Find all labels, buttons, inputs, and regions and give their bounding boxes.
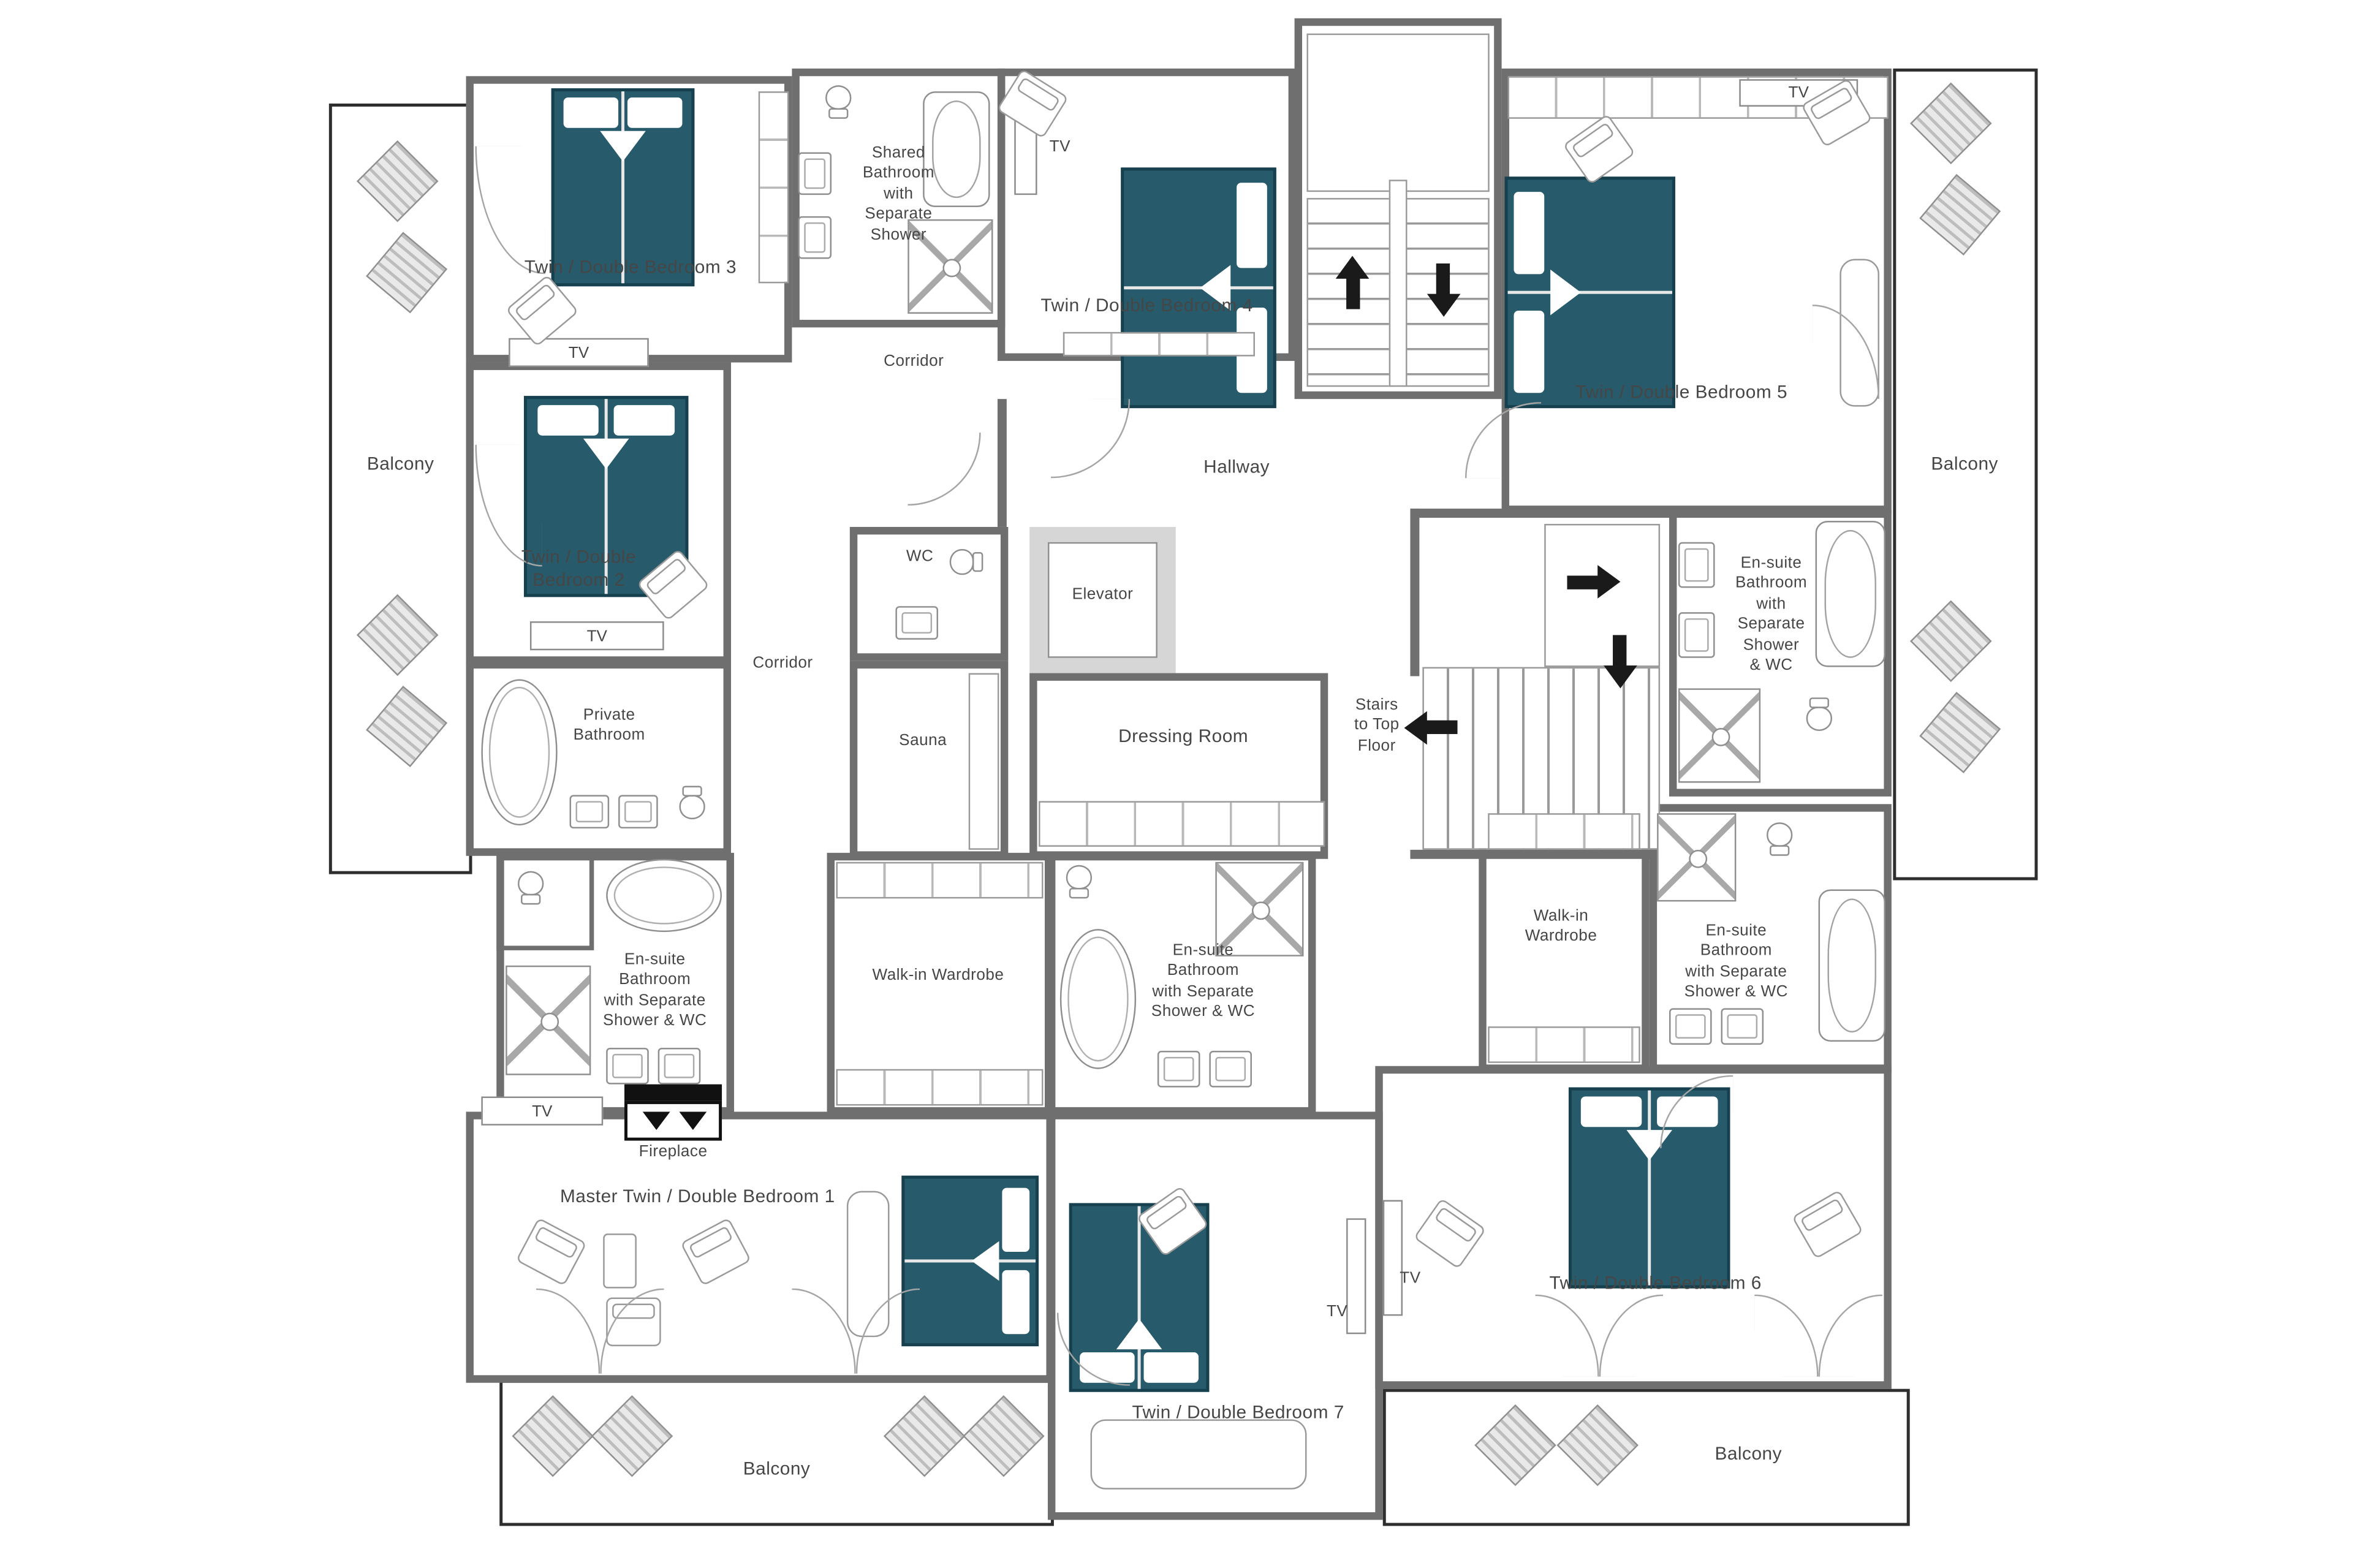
label-stairs: Stairs to Top Floor [1354,695,1400,757]
hall-wall-left [998,399,1007,527]
label-master-bedroom1: Master Twin / Double Bedroom 1 [484,1185,911,1208]
bathtub-icon [1060,929,1136,1069]
sink-icon [658,1048,701,1085]
shower-icon [1657,813,1736,901]
sink-icon [618,795,658,828]
sink-icon [1678,612,1715,658]
tv-label: TV [587,627,607,645]
label-balcony-bottom-right: Balcony [1715,1442,1782,1466]
label-dressing-room: Dressing Room [1061,725,1305,749]
label-elevator: Elevator [1072,585,1134,605]
balcony-bottom-left [499,1380,1054,1526]
toilet-icon [1767,822,1792,856]
dressing-room-cabinet [1039,801,1325,847]
label-ensuite-bedroom5: En-suite Bathroom with Separate Shower &… [1735,554,1807,676]
down-arrow-icon [1602,627,1639,688]
toilet-icon [1066,865,1092,899]
label-bedroom2: Twin / Double Bedroom 2 [521,546,636,593]
chaise-icon [1091,1419,1307,1489]
toilet-icon [1806,697,1832,731]
bathtub-icon [606,859,722,932]
toilet-icon [950,549,983,575]
fireplace-icon [624,1085,722,1101]
sink-icon [895,606,938,640]
label-shared-bathroom: Shared Bathroom with Separate Shower [863,144,934,246]
floorplan-canvas: TV TV TV TV TV TV TV [0,0,2353,1568]
tv-label: TV [1327,1303,1347,1323]
down-arrow-icon [1425,256,1462,317]
toilet-icon [679,786,705,819]
wardrobe-cabinet [1488,813,1640,850]
stairs-wall-bottom [1410,850,1669,859]
floorplan-page: TV TV TV TV TV TV TV [0,0,2353,1568]
dresser [1063,332,1255,357]
label-balcony-right: Balcony [1931,453,1998,476]
stairs-wall-top [1410,509,1669,518]
fireplace-icon [624,1101,722,1141]
tv-label: TV [569,343,589,362]
left-arrow-icon [1404,710,1465,746]
bed-bedroom4 [1121,167,1276,408]
label-private-bathroom: Private Bathroom [574,706,645,747]
sink-icon [1669,1008,1712,1045]
tv-bedroom6 [1383,1200,1403,1316]
label-bedroom4: Twin / Double Bedroom 4 [987,294,1307,317]
wardrobe-cabinet [836,1069,1043,1106]
tv-label: TV [1400,1269,1420,1289]
side-table [603,1233,637,1288]
label-sauna: Sauna [899,732,947,752]
bathtub-icon [1819,889,1885,1042]
sauna-bench [969,673,999,850]
label-bedroom3: Twin / Double Bedroom 3 [463,256,798,279]
label-wc: WC [906,547,934,567]
tv-bedroom3: TV [509,338,649,367]
stairs-wall-left [1410,509,1419,676]
wardrobe-cabinet [1488,1026,1640,1063]
sink-icon [606,1048,649,1085]
label-corridor-left: Corridor [752,654,813,674]
label-ensuite-master: En-suite Bathroom with Separate Shower &… [603,950,707,1032]
label-wardrobe-bedroom6: Walk-in Wardrobe [1525,907,1597,948]
stair-rail [1389,180,1408,387]
tv-bedroom2: TV [530,621,664,650]
bathtub-icon [1816,521,1885,667]
balcony-bottom-right [1383,1389,1910,1526]
tv-bedroom7 [1346,1218,1366,1334]
sink-icon [570,795,610,828]
sink-icon [1721,1008,1764,1045]
label-balcony-bottom-left: Balcony [743,1458,811,1481]
stairwell-top-open [1306,34,1489,192]
label-balcony-left: Balcony [367,453,434,476]
door-arc-icon [1051,399,1130,478]
bed-bedroom5 [1505,176,1675,408]
sink-icon [1678,542,1715,588]
shower-icon [1678,688,1760,782]
bed-master [901,1176,1039,1346]
right-arrow-icon [1559,564,1620,600]
sink-icon [1158,1051,1200,1088]
room-wc-compartment [496,853,594,950]
bathtub-icon [481,679,557,825]
sink-icon [798,216,832,259]
door-arc-icon [907,433,980,506]
tv-label: TV [1789,84,1809,102]
label-bedroom7: Twin / Double Bedroom 7 [1070,1401,1406,1425]
wardrobe-cabinet [759,91,789,283]
label-bedroom5: Twin / Double Bedroom 5 [1506,381,1857,404]
tv-label: TV [1050,137,1070,157]
shower-icon [506,966,591,1075]
wardrobe-cabinet [836,862,1043,899]
sink-icon [798,153,832,195]
label-fireplace: Fireplace [639,1143,708,1163]
toilet-icon [518,871,544,905]
door-arc-icon [1465,402,1541,478]
label-wardrobe-master: Walk-in Wardrobe [839,966,1037,986]
tv-label: TV [532,1102,552,1120]
tv-master: TV [481,1096,603,1125]
sink-icon [1209,1051,1252,1088]
up-arrow-icon [1334,256,1371,317]
label-corridor-top: Corridor [884,352,944,373]
toilet-icon [825,85,851,119]
label-hallway: Hallway [1203,456,1270,479]
label-ensuite-bedroom6: En-suite Bathroom with Separate Shower &… [1684,922,1788,1004]
label-bedroom6: Twin / Double Bedroom 6 [1480,1272,1831,1295]
label-ensuite-bedroom7: En-suite Bathroom with Separate Shower &… [1151,941,1255,1023]
